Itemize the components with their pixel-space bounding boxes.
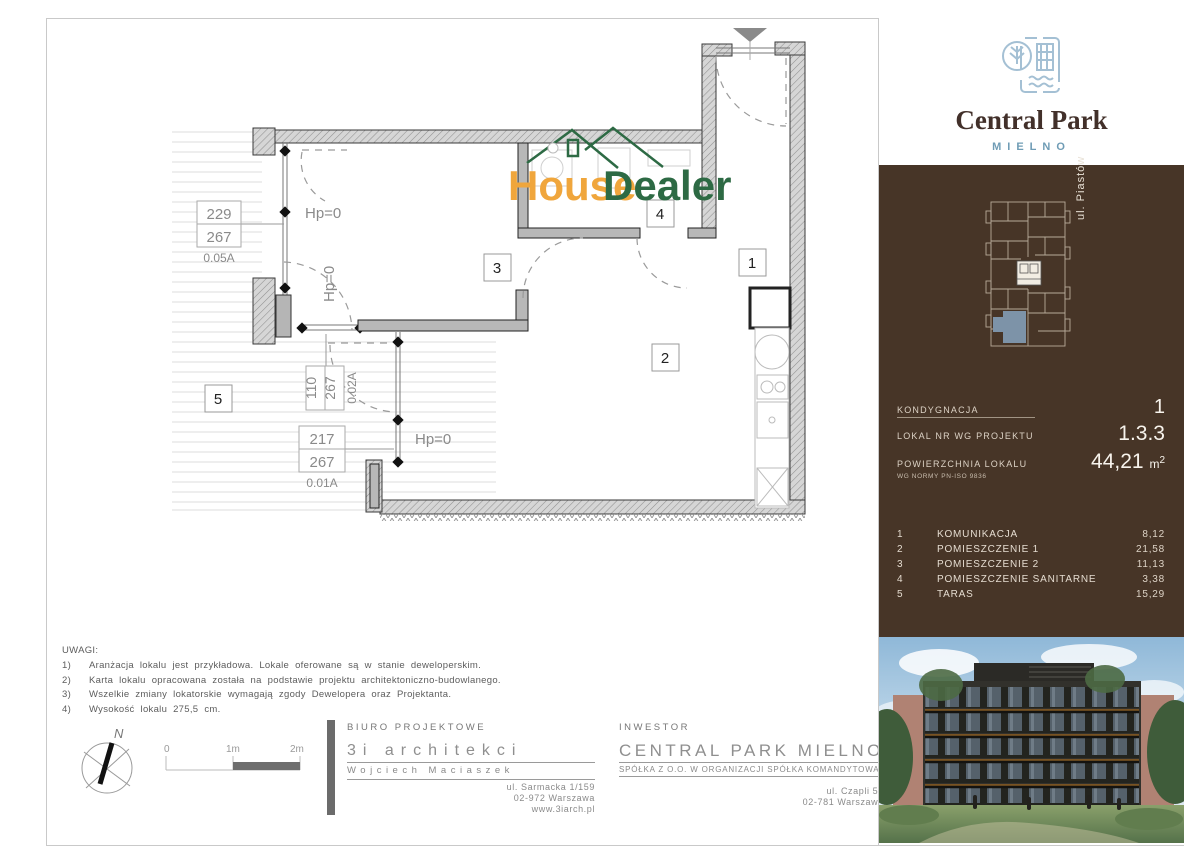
window-mullions: [279, 145, 403, 467]
floor-value: 1: [1154, 396, 1165, 419]
svg-text:267: 267: [322, 376, 338, 400]
office-header: BIURO PROJEKTOWE: [347, 722, 595, 733]
unit-info-panel: ul. Piastów KONDYGNACJA 1 LOKAL NR WG PR…: [879, 165, 1184, 637]
brand-name: Central Park: [879, 105, 1184, 136]
dimension-229: 229 267 0.05A: [197, 201, 284, 265]
note-item: 3) Wszelkie zmiany lokatorskie wymagają …: [62, 689, 582, 700]
window-frames: [276, 295, 291, 337]
svg-text:267: 267: [206, 229, 231, 246]
svg-text:110: 110: [303, 377, 319, 400]
unit-info: KONDYGNACJA 1 LOKAL NR WG PROJEKTU 1.3.3…: [897, 400, 1165, 486]
investor-subname: SPÓŁKA Z O.O. W ORGANIZACJI SPÓŁKA KOMAN…: [619, 765, 884, 777]
room-row: 5 TARAS 15,29: [897, 587, 1165, 602]
scale-bar: 0 1m 2m: [164, 744, 304, 770]
office-person: Wojciech Maciaszek: [347, 765, 595, 780]
svg-text:0.05A: 0.05A: [203, 251, 234, 265]
svg-text:1m: 1m: [226, 744, 240, 755]
watermark-text: House Dealer: [508, 162, 731, 209]
area-label: POWIERZCHNIA LOKALU: [897, 459, 1027, 469]
svg-text:Hp=0: Hp=0: [305, 205, 341, 222]
note-item: 2) Karta lokalu opracowana została na po…: [62, 675, 582, 686]
watermark-dot: [548, 143, 558, 153]
svg-text:Hp=0: Hp=0: [321, 266, 338, 302]
building-key-plan: [983, 197, 1078, 353]
svg-text:229: 229: [206, 206, 231, 223]
svg-text:0.01A: 0.01A: [306, 476, 337, 490]
svg-text:5: 5: [214, 391, 222, 408]
building-render-photo: [879, 637, 1184, 843]
svg-text:0: 0: [164, 744, 170, 755]
investor-name: CENTRAL PARK MIELNO: [619, 741, 884, 763]
floor-plan: 229 267 0.05A 110 267 0.02A 217 267 0.01…: [150, 20, 840, 560]
entrance-marker-icon: [733, 28, 767, 42]
svg-text:Hp=0: Hp=0: [415, 431, 451, 448]
office-bar: [327, 720, 335, 815]
investor-header: INWESTOR: [619, 722, 884, 733]
kitchen-fixtures: [750, 288, 790, 508]
area-norm: WG NORMY PN-ISO 9836: [897, 473, 1165, 480]
area-value: 44,21 m2: [1091, 450, 1165, 474]
svg-text:217: 217: [309, 431, 334, 448]
svg-text:Dealer: Dealer: [603, 162, 731, 209]
compass-and-scale: N 0 1m 2m: [70, 725, 315, 825]
svg-text:2m: 2m: [290, 744, 304, 755]
room-row: 4 POMIESZCZENIE SANITARNE 3,38: [897, 572, 1165, 587]
brand-logo-icon: [995, 34, 1069, 96]
note-item: 4) Wysokość lokalu 275,5 cm.: [62, 704, 582, 715]
svg-text:2: 2: [661, 350, 669, 367]
notes-title: UWAGI:: [62, 645, 582, 656]
office-name: 3i architekci: [347, 742, 595, 763]
notes-block: UWAGI: 1) Aranżacja lokalu jest przykład…: [62, 645, 582, 718]
svg-text:0.02A: 0.02A: [345, 372, 359, 403]
office-address: ul. Sarmacka 1/159 02-972 Warszawa www.3…: [507, 782, 595, 815]
room-row: 1 KOMUNIKACJA 8,12: [897, 527, 1165, 542]
insulation-line: [380, 514, 805, 521]
design-office-block: BIURO PROJEKTOWE 3i architekci Wojciech …: [327, 720, 595, 815]
highlighted-unit: [993, 311, 1026, 343]
room-row: 2 POMIESZCZENIE 1 21,58: [897, 542, 1165, 557]
street-label: ul. Piastów: [1075, 156, 1087, 220]
svg-text:N: N: [114, 726, 124, 741]
brand-logo-area: Central Park MIELNO: [879, 18, 1184, 165]
floor-label: KONDYGNACJA: [897, 405, 1035, 418]
sidebar: Central Park MIELNO: [878, 18, 1184, 845]
svg-text:1: 1: [748, 255, 756, 272]
room-list: 1 KOMUNIKACJA 8,12 2 POMIESZCZENIE 1 21,…: [897, 527, 1165, 602]
svg-text:267: 267: [309, 454, 334, 471]
room-row: 3 POMIESZCZENIE 2 11,13: [897, 557, 1165, 572]
unit-number-label: LOKAL NR WG PROJEKTU: [897, 431, 1034, 441]
note-item: 1) Aranżacja lokalu jest przykładowa. Lo…: [62, 660, 582, 671]
investor-address: ul. Czapli 57 02-781 Warszawa: [803, 786, 884, 808]
brand-city: MIELNO: [879, 141, 1184, 153]
compass-icon: N: [82, 726, 132, 793]
svg-text:3: 3: [493, 260, 501, 277]
unit-number-value: 1.3.3: [1118, 422, 1165, 446]
investor-block: INWESTOR CENTRAL PARK MIELNO SPÓŁKA Z O.…: [607, 720, 860, 815]
